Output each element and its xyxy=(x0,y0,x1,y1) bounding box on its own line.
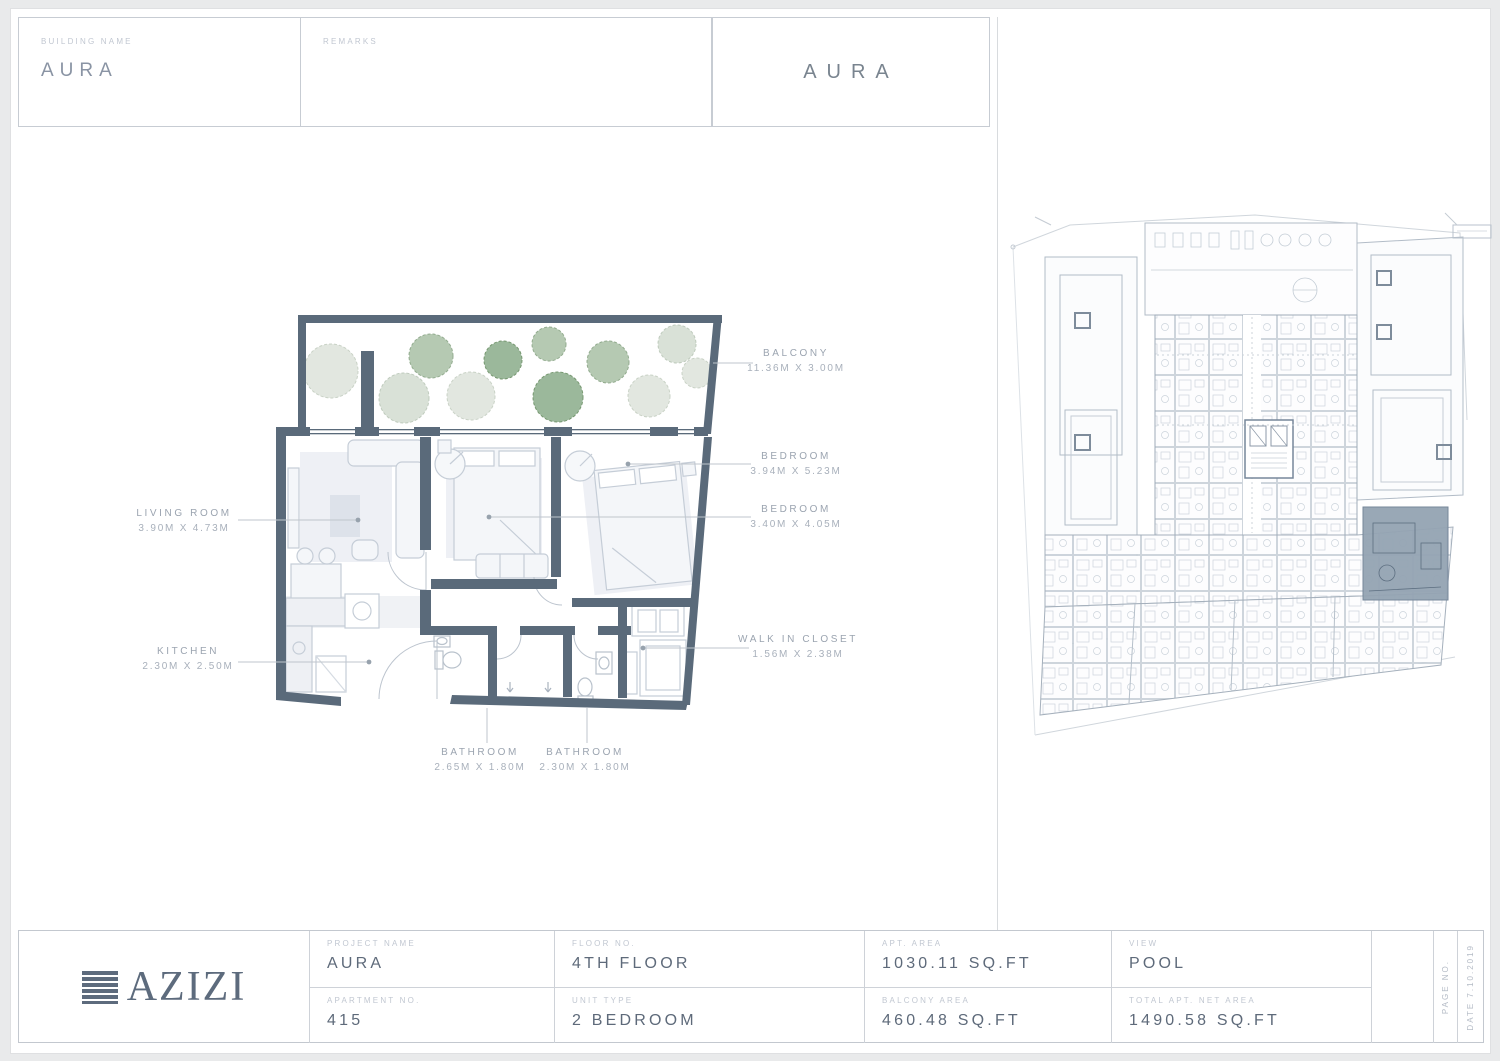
title-block-top: BUILDING NAME AURA REMARKS xyxy=(18,17,712,127)
footer-cell-unit-type: UNIT TYPE 2 BEDROOM xyxy=(554,987,864,1043)
plan-title: AURA xyxy=(712,17,990,127)
footer-cell-view: VIEW POOL xyxy=(1111,931,1371,987)
floor-plan-sheet: BUILDING NAME AURA REMARKS AURA xyxy=(0,0,1500,1061)
room-label-living-room: LIVING ROOM 3.90M X 4.73M xyxy=(104,509,264,534)
building-name-cell: BUILDING NAME AURA xyxy=(19,18,301,126)
remarks-label: REMARKS xyxy=(323,37,378,46)
room-label-bedroom-2: BEDROOM 3.40M X 4.05M xyxy=(712,505,880,530)
highlighted-unit xyxy=(1363,507,1448,600)
room-label-walk-in-closet: WALK IN CLOSET 1.56M X 2.38M xyxy=(712,635,884,660)
azizi-logo-text: AZIZI xyxy=(127,966,247,1008)
date-strip: DATE 7.10.2019 xyxy=(1457,931,1483,1043)
page-no-strip: PAGE NO. xyxy=(1433,931,1457,1043)
footer-spacer-cell xyxy=(1371,931,1433,1043)
footer-cell-total-net-area: TOTAL APT. NET AREA 1490.58 SQ.FT xyxy=(1111,987,1371,1043)
remarks-cell: REMARKS xyxy=(301,18,378,126)
room-label-bathroom-2: BATHROOM 2.30M X 1.80M xyxy=(505,748,665,773)
key-plan xyxy=(1005,195,1495,740)
footer-cell-floor-no: FLOOR NO. 4TH FLOOR xyxy=(554,931,864,987)
footer-cell-project-name: PROJECT NAME AURA xyxy=(309,931,554,987)
vertical-divider xyxy=(997,17,998,930)
azizi-logo: AZIZI xyxy=(19,931,309,1043)
room-label-balcony: BALCONY 11.36M X 3.00M xyxy=(712,349,880,374)
footer-cell-apartment-no: APARTMENT NO. 415 xyxy=(309,987,554,1043)
footer-cell-balcony-area: BALCONY AREA 460.48 SQ.FT xyxy=(864,987,1111,1043)
title-block-bottom: AZIZI PROJECT NAME AURA FLOOR NO. 4TH FL… xyxy=(18,930,1484,1043)
building-name-value: AURA xyxy=(41,60,300,82)
room-label-kitchen: KITCHEN 2.30M X 2.50M xyxy=(108,647,268,672)
room-label-bedroom-1: BEDROOM 3.94M X 5.23M xyxy=(712,452,880,477)
azizi-logo-bars-icon xyxy=(82,971,118,1004)
building-name-label: BUILDING NAME xyxy=(41,37,133,46)
footer-cell-apt-area: APT. AREA 1030.11 SQ.FT xyxy=(864,931,1111,987)
